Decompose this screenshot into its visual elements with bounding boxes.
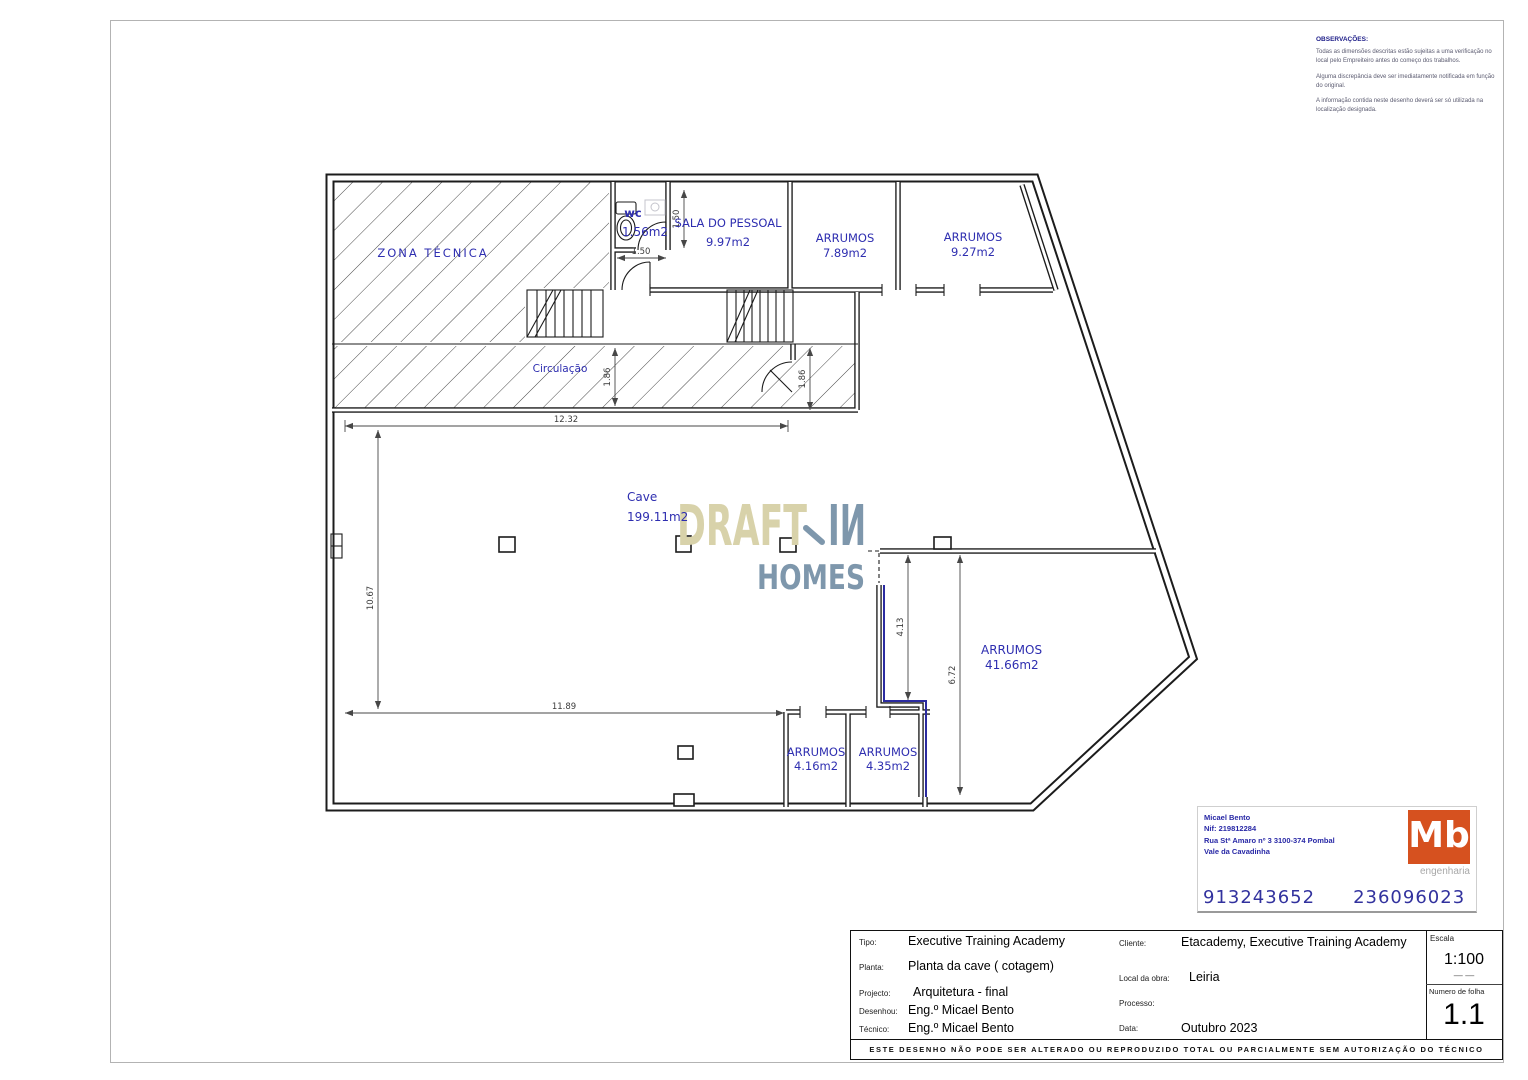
desenhou-label: Desenhou: bbox=[859, 1007, 898, 1016]
watermark: DRAFT IИ HOMES bbox=[677, 494, 866, 598]
room-wc: wc bbox=[624, 206, 642, 220]
projecto-label: Projecto: bbox=[859, 989, 891, 998]
room-arrumos-1-area: 7.89m2 bbox=[823, 246, 867, 260]
engineer-address-1: Rua Stª Amaro nº 3 3100-374 Pombal bbox=[1204, 835, 1335, 846]
room-arrumos-1: ARRUMOS bbox=[816, 231, 875, 245]
escala-sub: — — bbox=[1426, 970, 1502, 980]
watermark-draft: DRAFT bbox=[677, 494, 807, 559]
room-arrumos-2-area: 9.27m2 bbox=[951, 245, 995, 259]
drawing-sheet: OBSERVAÇÕES: Todas as dimensões descrita… bbox=[0, 0, 1528, 1080]
phone-numbers: 913243652236096023 bbox=[1203, 887, 1503, 908]
watermark-tick bbox=[806, 528, 822, 542]
mb-engenharia-logo: Mb bbox=[1408, 810, 1470, 864]
data-label: Data: bbox=[1119, 1024, 1138, 1033]
title-block: Tipo: Executive Training Academy Planta:… bbox=[850, 930, 1503, 1060]
dim-storage-right: 6.72 bbox=[948, 666, 958, 685]
disclaimer: ESTE DESENHO NÃO PODE SER ALTERADO OU RE… bbox=[851, 1039, 1502, 1059]
room-zona-tecnica: ZONA TÉCNICA bbox=[377, 245, 488, 260]
dim-left-height: 10.67 bbox=[366, 586, 376, 610]
dim-corridor-right: 1.86 bbox=[798, 370, 808, 389]
room-cave: Cave bbox=[627, 490, 657, 504]
local-obra-value: Leiria bbox=[1189, 970, 1220, 984]
room-arrumos-5: ARRUMOS bbox=[859, 745, 918, 759]
room-arrumos-5-area: 4.35m2 bbox=[866, 759, 910, 773]
room-arrumos-4: ARRUMOS bbox=[787, 745, 846, 759]
tecnico-value: Eng.º Micael Bento bbox=[908, 1021, 1014, 1035]
folha-value: 1.1 bbox=[1426, 998, 1502, 1032]
room-cave-area: 199.11m2 bbox=[627, 510, 688, 524]
room-arrumos-4-area: 4.16m2 bbox=[794, 759, 838, 773]
hatch-zona-tecnica bbox=[334, 182, 609, 342]
engineer-nif: Nif: 219812284 bbox=[1204, 823, 1335, 834]
data-value: Outubro 2023 bbox=[1181, 1021, 1257, 1035]
tipo-value: Executive Training Academy bbox=[908, 934, 1065, 948]
sink-icon bbox=[645, 200, 665, 215]
engineer-stamp: Micael Bento Nif: 219812284 Rua Stª Amar… bbox=[1197, 806, 1477, 913]
engineer-address-2: Vale da Cavadinha bbox=[1204, 846, 1335, 857]
staircase-left bbox=[527, 290, 603, 337]
escala-separator bbox=[1426, 984, 1502, 985]
folha-label: Numero de folha bbox=[1426, 987, 1505, 996]
projecto-value: Arquitetura - final bbox=[913, 985, 1008, 999]
tipo-label: Tipo: bbox=[859, 938, 877, 947]
processo-label: Processo: bbox=[1119, 999, 1155, 1008]
room-arrumos-3: ARRUMOS bbox=[981, 643, 1042, 657]
cliente-label: Cliente: bbox=[1119, 939, 1146, 948]
planta-label: Planta: bbox=[859, 963, 884, 972]
room-wc-area: 1.56m2 bbox=[622, 225, 668, 239]
dim-top-width: 12.32 bbox=[554, 415, 578, 425]
engineer-info: Micael Bento Nif: 219812284 Rua Stª Amar… bbox=[1204, 812, 1335, 857]
engineer-name: Micael Bento bbox=[1204, 812, 1335, 823]
dashed-wall-segment bbox=[868, 551, 880, 583]
tecnico-label: Técnico: bbox=[859, 1025, 889, 1034]
room-circulacao: Circulação bbox=[533, 363, 588, 375]
cliente-value: Etacademy, Executive Training Academy bbox=[1181, 935, 1407, 949]
desenhou-value: Eng.º Micael Bento bbox=[908, 1003, 1014, 1017]
local-obra-label: Local da obra: bbox=[1119, 974, 1170, 983]
room-sala-pessoal-area: 9.97m2 bbox=[706, 235, 750, 249]
room-arrumos-3-area: 41.66m2 bbox=[985, 658, 1039, 672]
room-sala-pessoal: SALA DO PESSOAL bbox=[674, 216, 782, 230]
phone-1: 913243652 bbox=[1203, 887, 1315, 908]
planta-value: Planta da cave ( cotagem) bbox=[908, 959, 1054, 973]
dim-storage-inner: 4.13 bbox=[896, 618, 906, 637]
escala-value: 1:100 bbox=[1426, 951, 1502, 969]
watermark-in: IИ bbox=[828, 494, 866, 559]
room-arrumos-2: ARRUMOS bbox=[944, 230, 1003, 244]
mb-engenharia-label: engenharia bbox=[1408, 866, 1470, 877]
escala-label: Escala bbox=[1426, 934, 1506, 943]
watermark-homes: HOMES bbox=[757, 558, 865, 598]
staircase-right bbox=[727, 290, 793, 342]
phone-2: 236096023 bbox=[1353, 887, 1465, 908]
floor-plan: DRAFT IИ HOMES 1.50 1.50 1.86 1.86 12.32… bbox=[0, 0, 1528, 1080]
dim-corridor-left: 1.86 bbox=[603, 368, 613, 387]
dim-wc-width: 1.50 bbox=[632, 247, 651, 257]
dim-bottom-width: 11.89 bbox=[552, 702, 576, 712]
